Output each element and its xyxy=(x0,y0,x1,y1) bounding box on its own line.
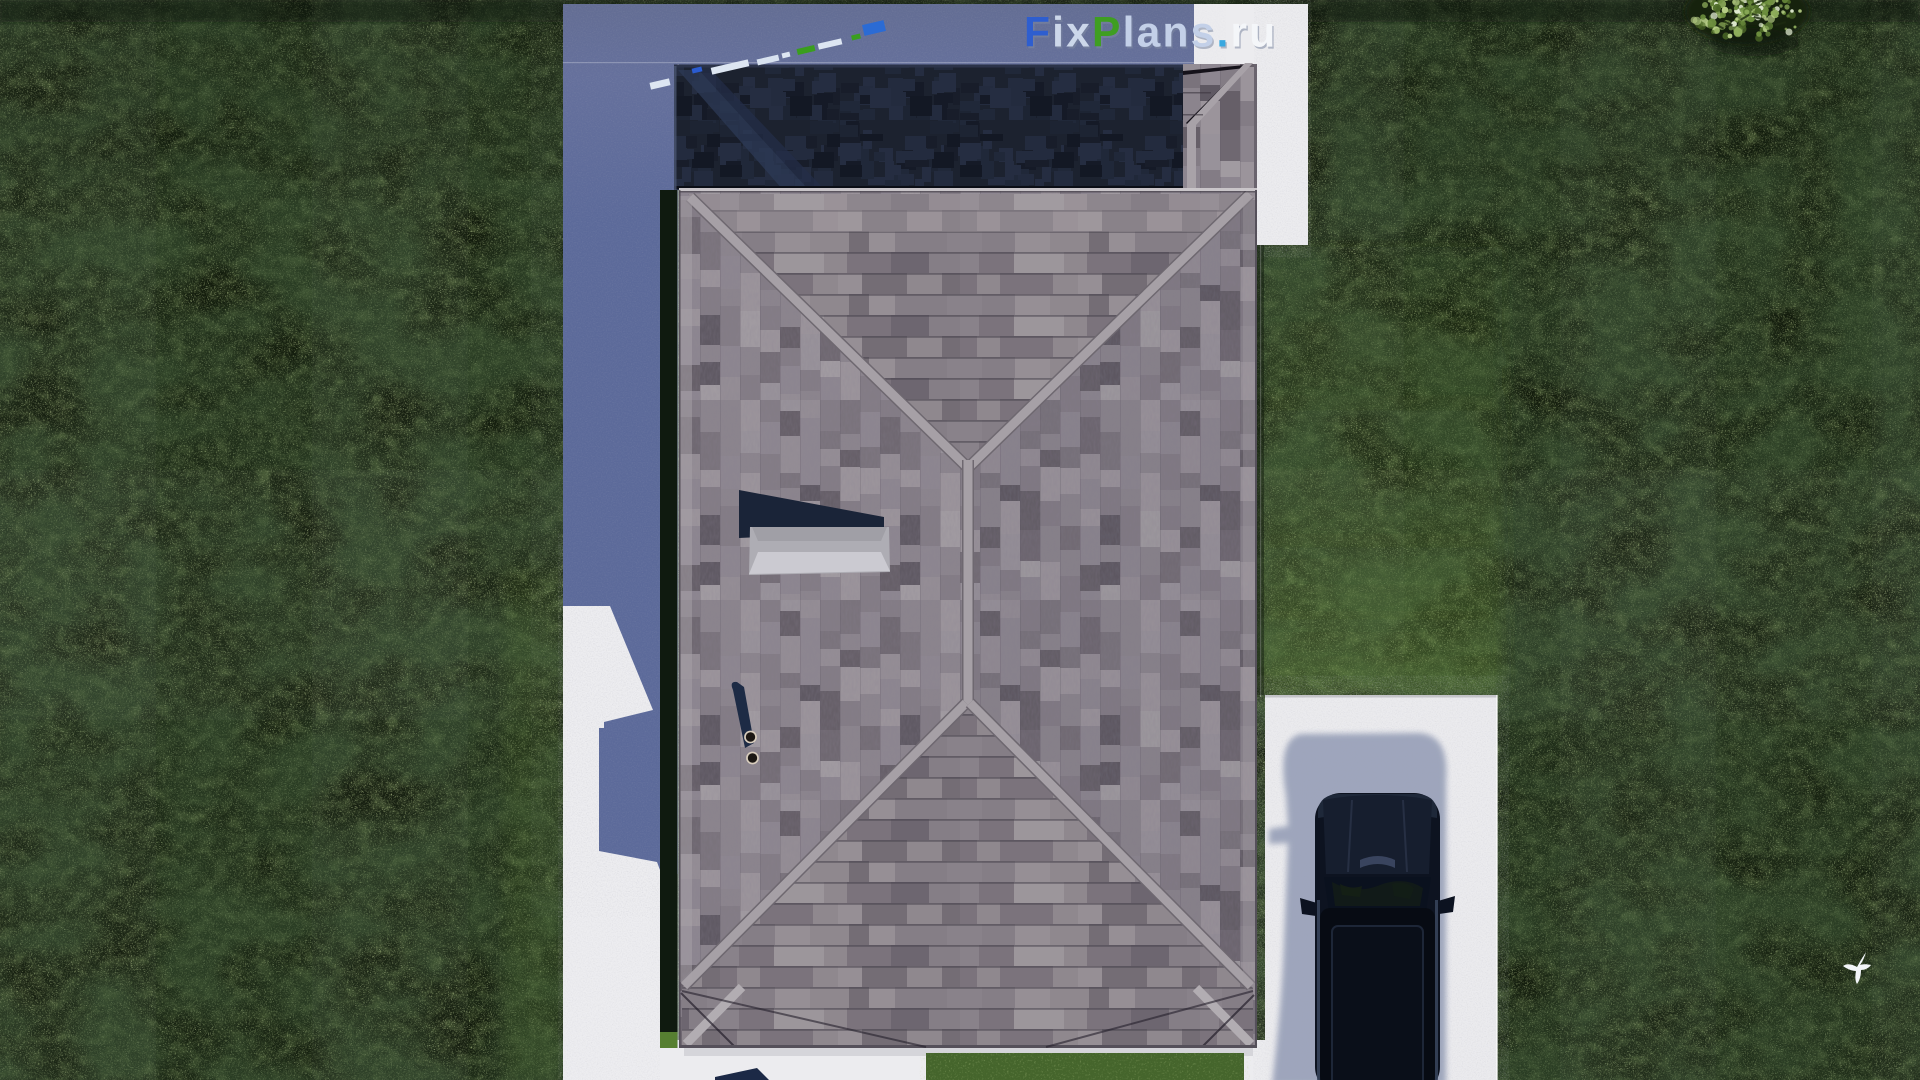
svg-text:FixPlans.ru: FixPlans.ru xyxy=(1024,10,1277,57)
